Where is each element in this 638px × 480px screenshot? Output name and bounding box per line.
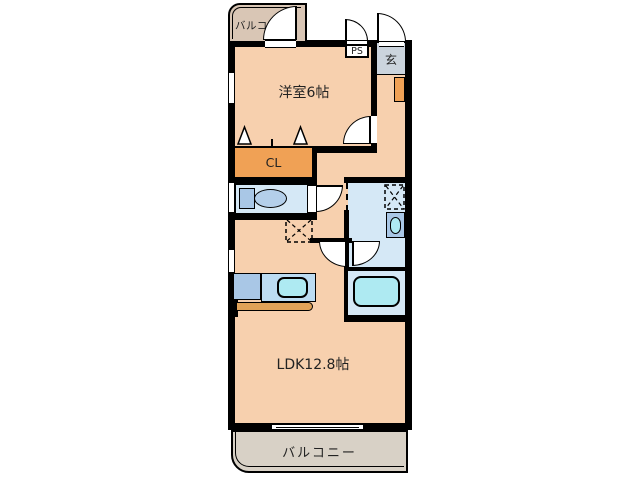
washroom-left-dashed xyxy=(346,183,348,211)
toilet-icon xyxy=(239,188,255,209)
window-icon xyxy=(228,250,235,272)
kitchen-counter-icon xyxy=(236,302,313,311)
door-swing-icon xyxy=(377,13,406,42)
floor-plan: バルコニー CL xyxy=(0,0,638,480)
window-icon xyxy=(228,73,235,103)
sliding-window-sash xyxy=(276,427,359,428)
washing-machine-space-icon xyxy=(384,184,405,210)
closet: CL xyxy=(235,148,312,177)
bathroom-bottom-wall xyxy=(344,315,405,322)
toilet-bowl-icon xyxy=(254,189,287,208)
bathtub-icon xyxy=(353,276,400,307)
pipe-space: PS xyxy=(345,44,369,58)
pipe-space-label: PS xyxy=(351,46,363,57)
ldk-label: LDK12.8帖 xyxy=(248,356,378,372)
kitchen-stove-unit xyxy=(233,273,261,300)
folding-closet-door-icon xyxy=(235,123,315,146)
kitchen-sink-icon xyxy=(277,277,308,298)
closet-label: CL xyxy=(266,155,282,170)
western-room-door-opening xyxy=(371,116,377,143)
vanity-bowl-icon xyxy=(390,217,401,234)
door-swing-icon xyxy=(345,19,368,41)
balcony-bottom: バルコニー xyxy=(231,430,408,473)
window-icon xyxy=(228,183,235,212)
closet-line-tick xyxy=(271,139,273,147)
entrance-label: 玄 xyxy=(377,51,405,67)
vanity-sink-icon xyxy=(386,212,405,238)
balcony-door-opening xyxy=(265,40,296,48)
shoe-cabinet-icon xyxy=(394,77,405,102)
balcony-bottom-inner-line xyxy=(235,432,404,467)
refrigerator-space-icon xyxy=(285,218,313,243)
western-room-label: 洋室6帖 xyxy=(254,84,354,100)
